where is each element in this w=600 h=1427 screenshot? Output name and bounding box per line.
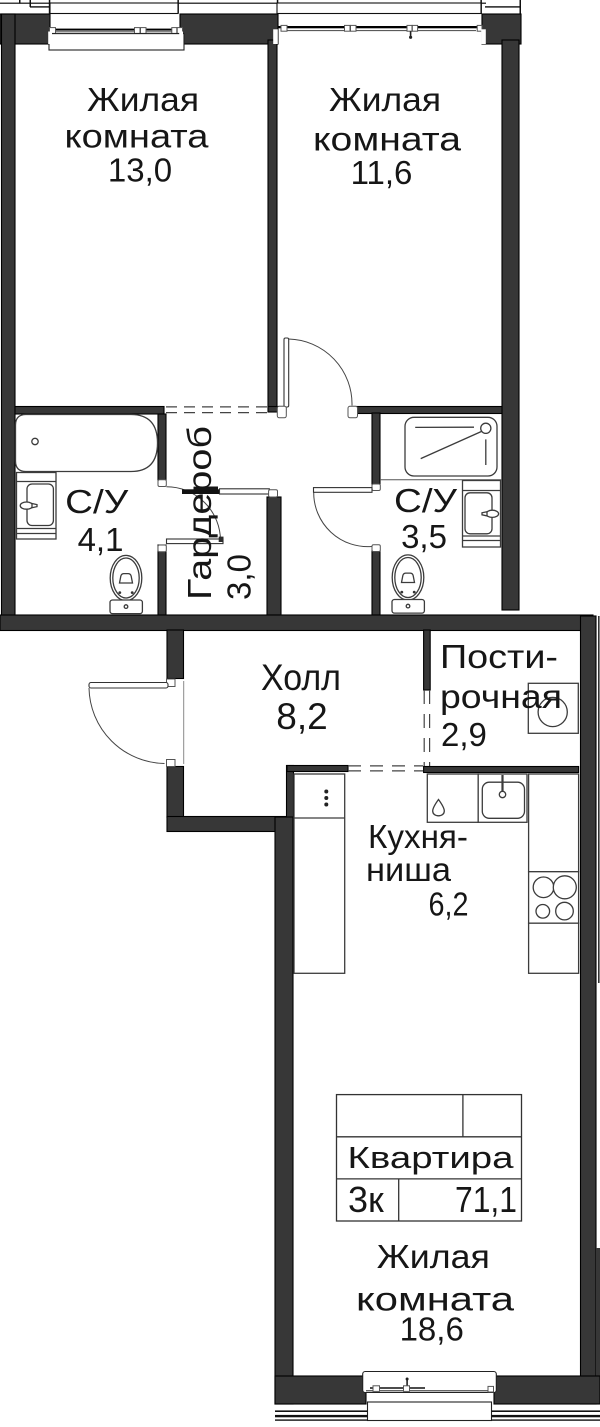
svg-text:2,9: 2,9 <box>441 716 487 753</box>
svg-text:3,5: 3,5 <box>401 518 447 555</box>
svg-text:3к: 3к <box>348 1179 384 1220</box>
svg-text:С/У: С/У <box>65 483 129 520</box>
svg-text:Жилая: Жилая <box>329 81 441 118</box>
svg-text:Холл: Холл <box>261 657 341 698</box>
svg-text:Жилая: Жилая <box>377 1238 490 1275</box>
svg-text:18,6: 18,6 <box>400 1311 464 1348</box>
svg-text:рочная: рочная <box>440 678 562 715</box>
svg-text:Пости-: Пости- <box>440 638 558 675</box>
svg-text:комната: комната <box>65 118 210 155</box>
svg-text:Жилая: Жилая <box>87 81 199 118</box>
svg-text:13,0: 13,0 <box>108 152 172 189</box>
svg-text:3,0: 3,0 <box>221 554 258 600</box>
svg-text:Гардероб: Гардероб <box>181 426 218 600</box>
svg-text:6,2: 6,2 <box>429 886 469 923</box>
svg-text:С/У: С/У <box>394 482 458 519</box>
svg-text:Кухня-: Кухня- <box>368 818 468 855</box>
svg-text:ниша: ниша <box>366 851 452 888</box>
svg-text:11,6: 11,6 <box>351 154 413 191</box>
svg-text:4,1: 4,1 <box>78 521 124 558</box>
svg-text:8,2: 8,2 <box>276 696 327 737</box>
svg-text:71,1: 71,1 <box>455 1179 517 1220</box>
svg-text:Квартира: Квартира <box>348 1140 515 1175</box>
svg-text:комната: комната <box>313 121 462 158</box>
